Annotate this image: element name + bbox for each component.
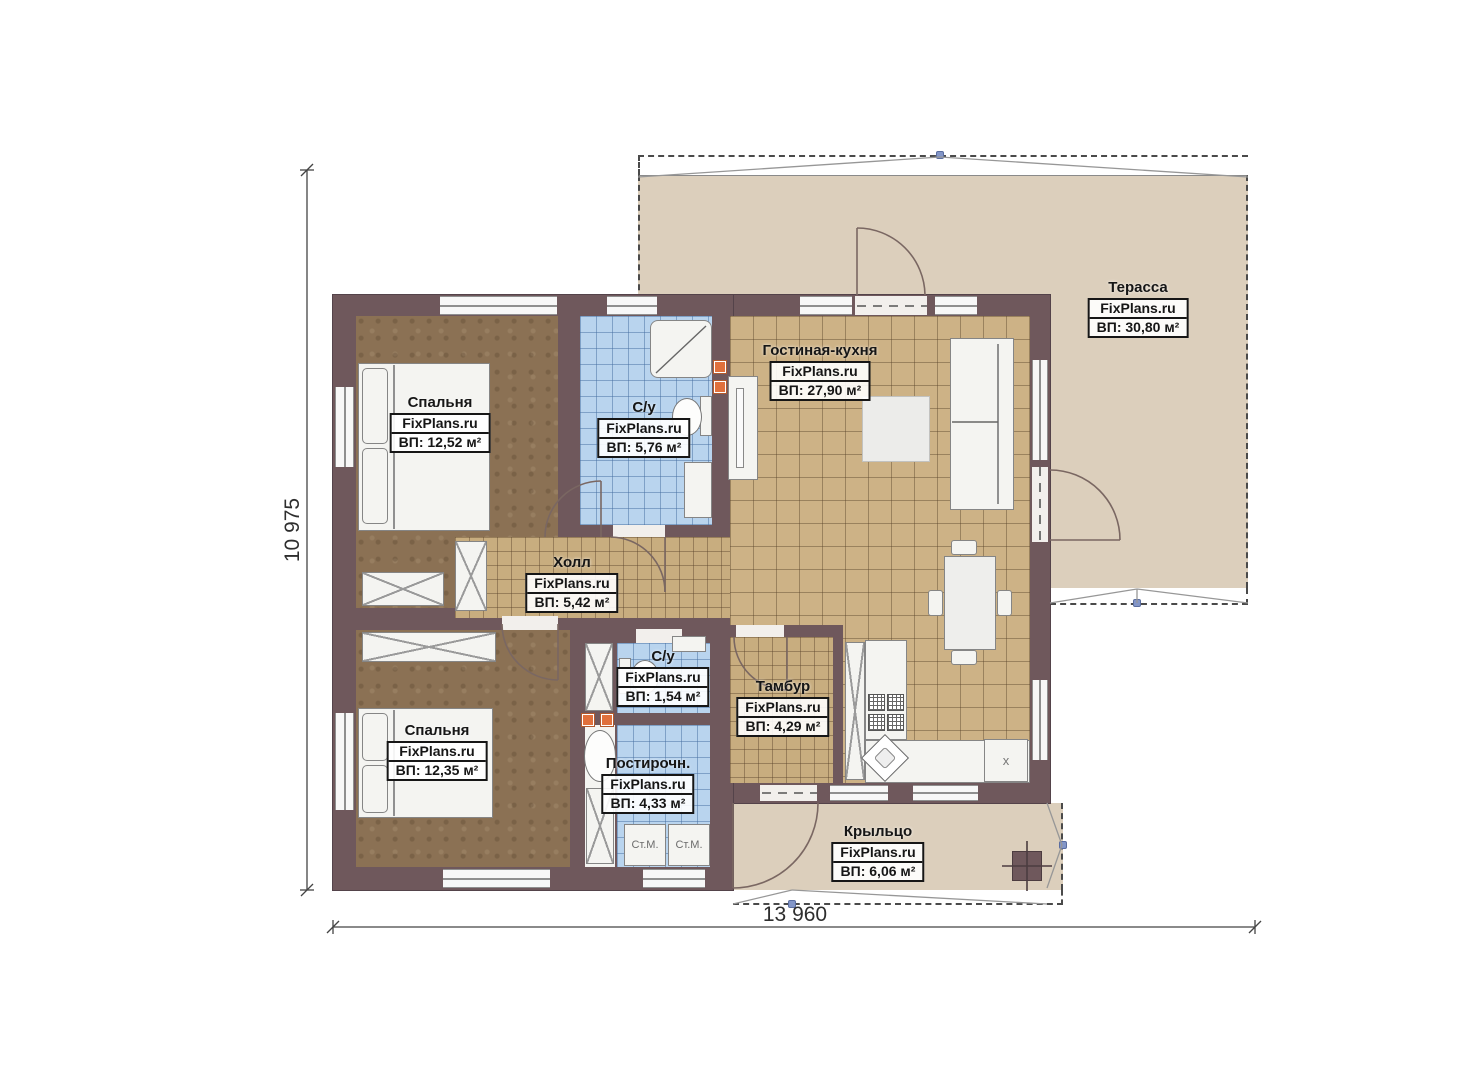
bathroom-1-door-gap (613, 525, 665, 537)
wardrobe-symbol (362, 632, 496, 662)
window (335, 713, 354, 810)
dimension-slash (327, 921, 339, 933)
vent-marker (714, 361, 726, 373)
room-label-box: FixPlans.ru ВП: 5,42 м² (525, 573, 618, 613)
roof-node-marker (1059, 841, 1067, 849)
pillow-symbol (362, 765, 388, 813)
room-label-box: FixPlans.ru ВП: 4,33 м² (601, 774, 694, 814)
brand-label: FixPlans.ru (738, 699, 827, 718)
vent-marker (582, 714, 594, 726)
chair-symbol (951, 540, 977, 555)
brand-label: FixPlans.ru (389, 743, 486, 762)
room-label-box: FixPlans.ru ВП: 5,76 м² (597, 418, 690, 458)
room-name: Терасса (1108, 279, 1167, 296)
vent-marker (714, 381, 726, 393)
stove-burner (887, 714, 904, 731)
room-label-laundry: Постирочн. FixPlans.ru ВП: 4,33 м² (601, 755, 694, 814)
dimension-slash (301, 164, 313, 176)
porch-pillar-symbol (1012, 851, 1042, 881)
closet-symbol (585, 643, 613, 711)
window (935, 296, 977, 315)
window (830, 785, 888, 801)
room-label-bathroom-1: С/у FixPlans.ru ВП: 5,76 м² (597, 399, 690, 458)
room-name: Гостиная-кухня (763, 342, 878, 359)
window (913, 785, 978, 801)
room-label-box: FixPlans.ru ВП: 27,90 м² (770, 361, 871, 401)
fridge-label: x (1003, 753, 1010, 768)
window (335, 387, 354, 467)
pillow-symbol (362, 448, 388, 524)
sofa-symbol (950, 338, 1014, 510)
roof-node-marker (1133, 599, 1141, 607)
room-label-terrace: Терасса FixPlans.ru ВП: 30,80 м² (1088, 279, 1189, 338)
coffee-table-symbol (862, 396, 930, 462)
brand-label: FixPlans.ru (772, 363, 869, 382)
area-label: ВП: 4,29 м² (738, 718, 827, 735)
room-label-box: FixPlans.ru ВП: 30,80 м² (1088, 298, 1189, 338)
washing-machine: Ст.М. (624, 824, 666, 866)
dimension-height-label: 10 975 (281, 498, 305, 562)
room-name: Спальня (408, 394, 473, 411)
room-name: Спальня (405, 722, 470, 739)
room-name: С/у (632, 399, 655, 416)
stove-burner (868, 694, 885, 711)
vestibule-door-gap (736, 625, 784, 637)
area-label: ВП: 6,06 м² (833, 863, 922, 880)
dining-table-symbol (944, 556, 996, 650)
area-label: ВП: 12,52 м² (392, 434, 489, 451)
room-label-box: FixPlans.ru ВП: 12,52 м² (390, 413, 491, 453)
brand-label: FixPlans.ru (392, 415, 489, 434)
entrance-door-gap (760, 785, 817, 801)
wardrobe-symbol (455, 541, 487, 611)
floor-plan-canvas: Ст.М. Ст.М. x (0, 0, 1473, 1080)
room-label-box: FixPlans.ru ВП: 12,35 м² (387, 741, 488, 781)
terrace-door-right-gap (1032, 467, 1048, 542)
shower-symbol (650, 320, 712, 378)
area-label: ВП: 5,76 м² (599, 439, 688, 456)
area-label: ВП: 5,42 м² (527, 594, 616, 611)
area-label: ВП: 4,33 м² (603, 795, 692, 812)
room-label-bedroom-2: Спальня FixPlans.ru ВП: 12,35 м² (387, 722, 488, 781)
wardrobe-symbol (362, 572, 444, 606)
pillow-symbol (362, 713, 388, 761)
room-name: С/у (651, 648, 674, 665)
washing-machine: Ст.М. (668, 824, 710, 866)
window (1032, 360, 1048, 460)
fridge-symbol: x (984, 739, 1028, 782)
brand-label: FixPlans.ru (1090, 300, 1187, 319)
window (1032, 680, 1048, 760)
room-name: Крыльцо (844, 823, 912, 840)
room-name: Постирочн. (606, 755, 691, 772)
room-label-box: FixPlans.ru ВП: 1,54 м² (616, 667, 709, 707)
room-label-bedroom-1: Спальня FixPlans.ru ВП: 12,52 м² (390, 394, 491, 453)
room-label-porch: Крыльцо FixPlans.ru ВП: 6,06 м² (831, 823, 924, 882)
stove-burner (887, 694, 904, 711)
washing-machine-label: Ст.М. (675, 839, 702, 851)
area-label: ВП: 1,54 м² (618, 688, 707, 705)
area-label: ВП: 12,35 м² (389, 762, 486, 779)
area-label: ВП: 30,80 м² (1090, 319, 1187, 336)
tv-symbol (736, 388, 744, 468)
window (800, 296, 852, 315)
roof-node-marker (936, 151, 944, 159)
room-label-hall: Холл FixPlans.ru ВП: 5,42 м² (525, 554, 618, 613)
dimension-slash (301, 884, 313, 896)
window (443, 869, 550, 888)
chair-symbol (951, 650, 977, 665)
bedroom-2-door-gap (502, 616, 558, 630)
washing-machine-label: Ст.М. (631, 839, 658, 851)
window (607, 296, 657, 315)
brand-label: FixPlans.ru (599, 420, 688, 439)
chair-symbol (997, 590, 1012, 616)
washbasin-symbol (684, 462, 712, 518)
room-name: Тамбур (756, 678, 810, 695)
pillow-symbol (362, 368, 388, 444)
window (643, 869, 705, 888)
room-label-vestibule: Тамбур FixPlans.ru ВП: 4,29 м² (736, 678, 829, 737)
terrace-door-top-gap (855, 296, 927, 315)
brand-label: FixPlans.ru (603, 776, 692, 795)
room-label-box: FixPlans.ru ВП: 6,06 м² (831, 842, 924, 882)
room-label-bathroom-2: С/у FixPlans.ru ВП: 1,54 м² (616, 648, 709, 707)
brand-label: FixPlans.ru (527, 575, 616, 594)
dimension-width-label: 13 960 (763, 903, 827, 927)
vestibule-kitchen-wall (833, 637, 843, 783)
chair-symbol (928, 590, 943, 616)
vent-marker (601, 714, 613, 726)
brand-label: FixPlans.ru (618, 669, 707, 688)
room-label-box: FixPlans.ru ВП: 4,29 м² (736, 697, 829, 737)
terrace-roof-strip-bottom (1050, 588, 1248, 605)
room-label-living-kitchen: Гостиная-кухня FixPlans.ru ВП: 27,90 м² (763, 342, 878, 401)
window (440, 296, 557, 315)
area-label: ВП: 27,90 м² (772, 382, 869, 399)
dimension-slash (1249, 921, 1261, 933)
stove-burner (868, 714, 885, 731)
brand-label: FixPlans.ru (833, 844, 922, 863)
room-name: Холл (553, 554, 591, 571)
